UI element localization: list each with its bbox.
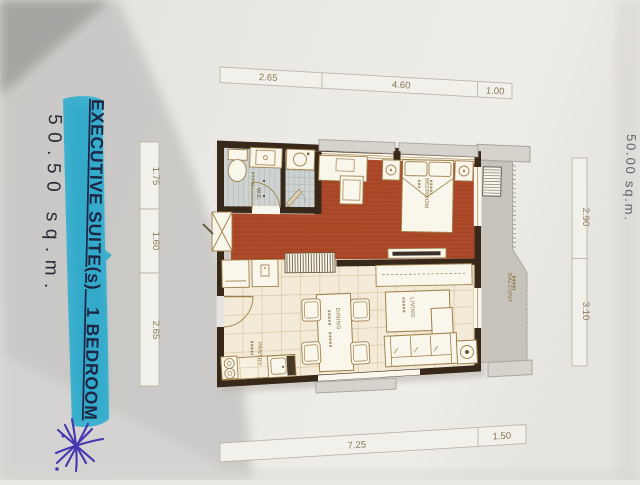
svg-text:7.25: 7.25: [347, 439, 366, 451]
svg-text:50.50 sq.m.: 50.50 sq.m.: [40, 114, 65, 296]
svg-text:4.60: 4.60: [392, 79, 411, 91]
svg-text:3.10: 3.10: [580, 302, 591, 321]
svg-text:2.65: 2.65: [150, 321, 161, 340]
svg-text:DINING: DINING: [334, 308, 341, 330]
svg-text:PANTRY: PANTRY: [256, 342, 262, 366]
svg-text:50.00 sq.m.: 50.00 sq.m.: [622, 134, 639, 222]
svg-text:1.00: 1.00: [486, 85, 505, 97]
svg-text:BEDROOM: BEDROOM: [423, 178, 430, 209]
svg-text:W.C.: W.C.: [255, 188, 261, 201]
svg-text:2.65: 2.65: [259, 72, 278, 84]
svg-text:1.75: 1.75: [150, 167, 161, 186]
svg-text:2.90: 2.90: [580, 208, 591, 227]
svg-text:1.50: 1.50: [492, 430, 511, 442]
svg-text:BALCONY: BALCONY: [506, 273, 512, 303]
svg-text:1.60: 1.60: [150, 232, 161, 251]
svg-text:LIVING: LIVING: [409, 297, 416, 318]
